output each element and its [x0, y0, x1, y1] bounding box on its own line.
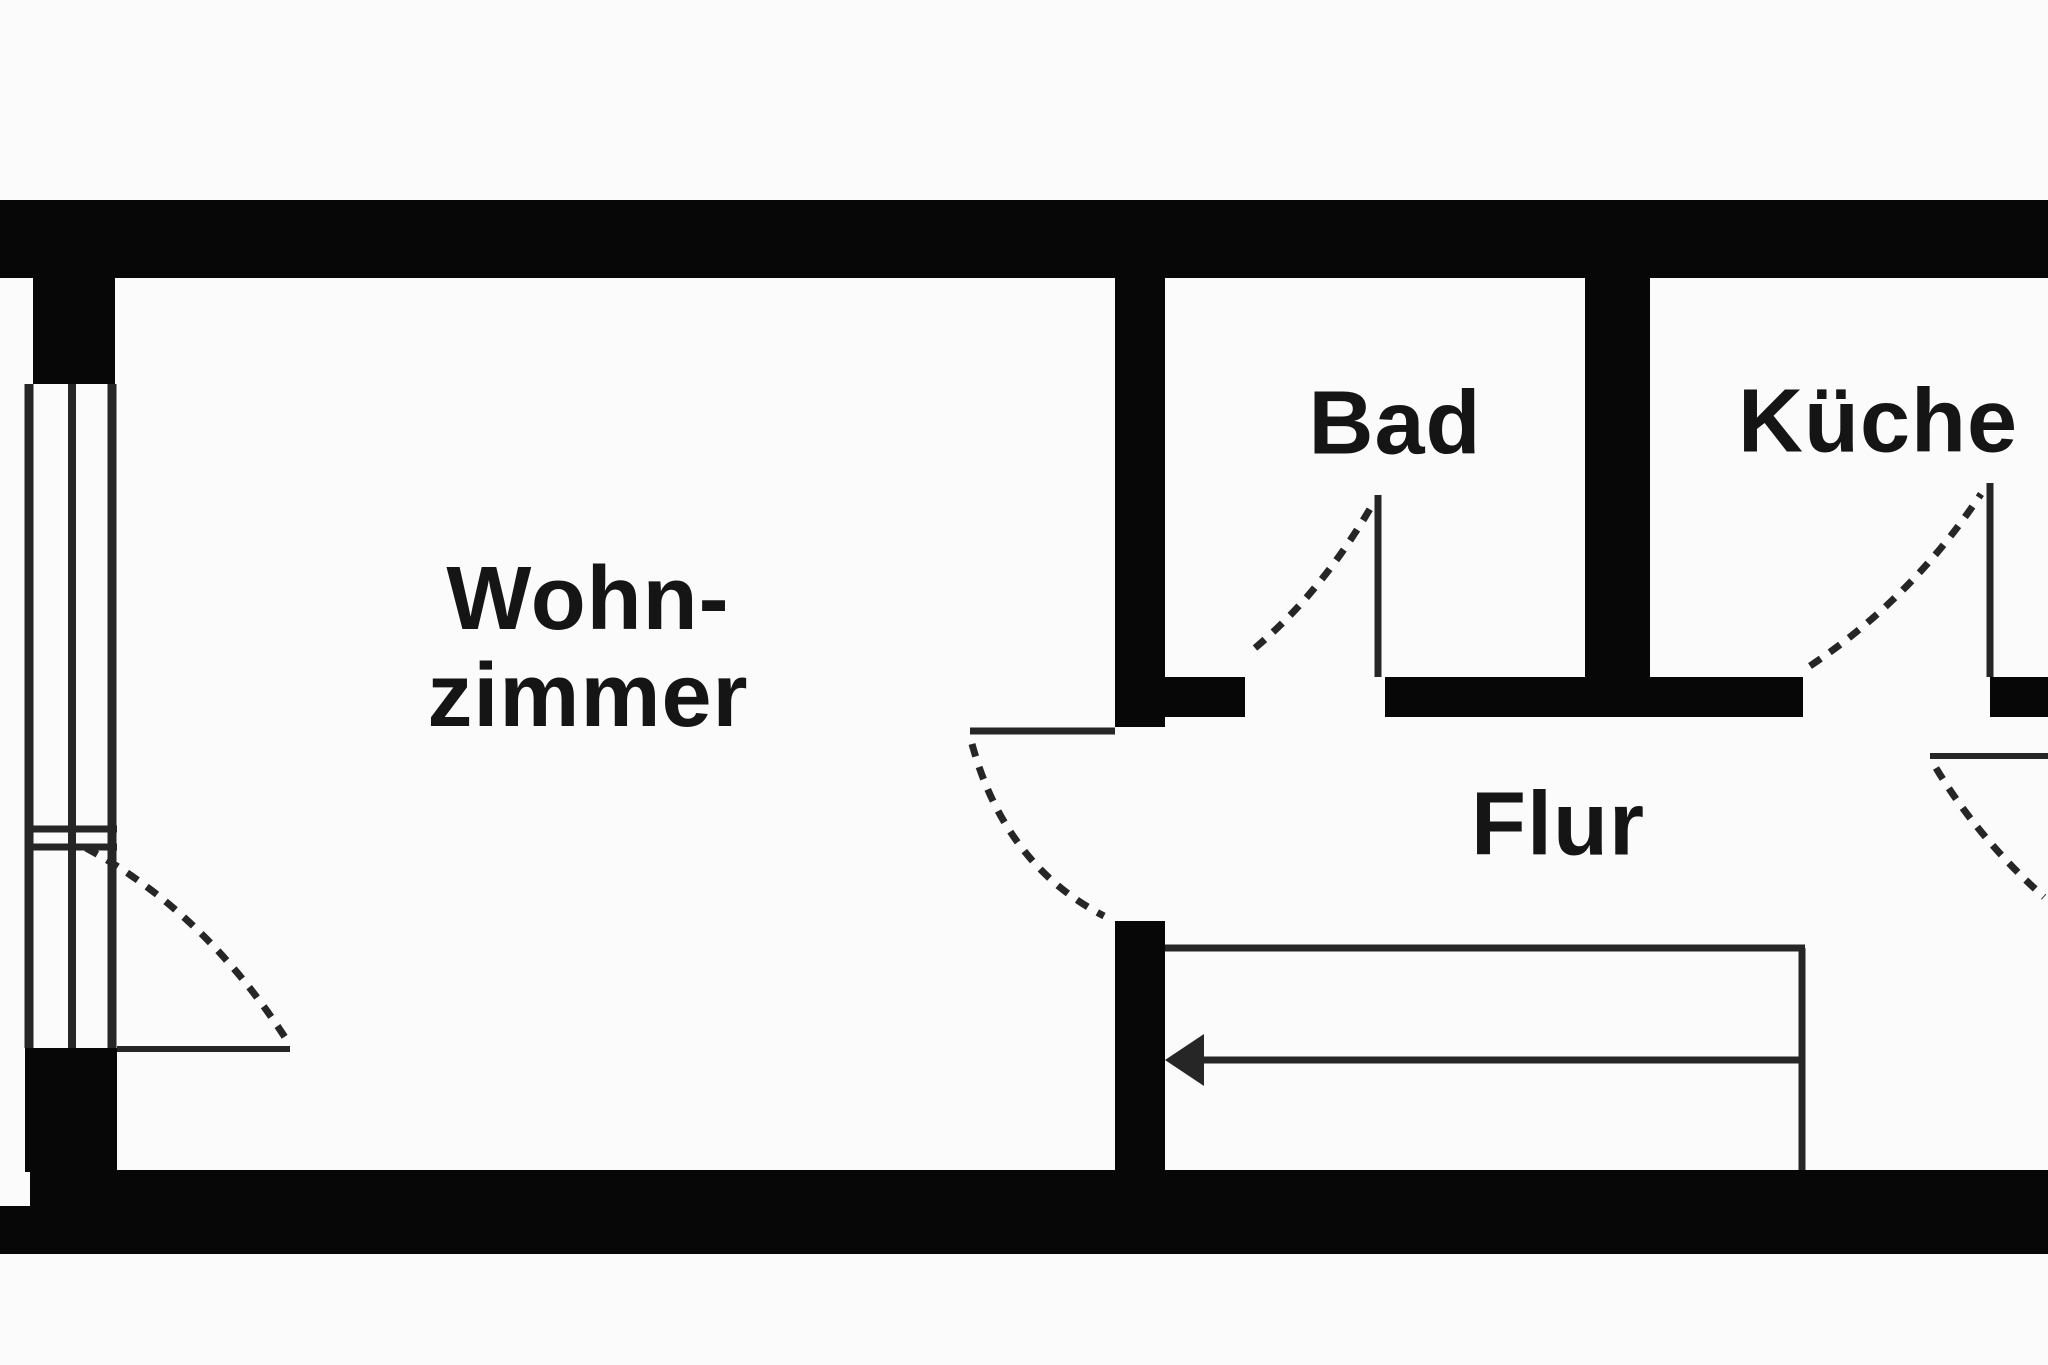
room-label-bad: Bad: [1308, 376, 1481, 473]
right-edge-door: [1930, 756, 2048, 897]
floor-plan: Wohn- zimmer Bad Küche Flur: [0, 0, 2048, 1365]
bad-door: [1255, 495, 1378, 677]
staircase: [1165, 948, 1805, 1170]
left-window: [25, 384, 117, 1048]
left-wall-bottom-pier: [25, 1048, 117, 1172]
top-wall: [0, 200, 2048, 278]
bad-kueche-divider-wall: [1585, 278, 1650, 678]
balcony-door: [86, 848, 290, 1049]
flur-wall-segment-left: [1165, 677, 1245, 717]
outer-walls: [0, 200, 2048, 1254]
room-label-flur: Flur: [1471, 777, 1645, 874]
room-label-wohnzimmer-line2: zimmer: [427, 648, 748, 745]
bottom-wall: [30, 1170, 2048, 1254]
left-wall-top-pier: [33, 278, 115, 384]
flur-wall-segment-middle: [1385, 677, 1803, 717]
stairs-direction-arrow-icon: [1165, 1034, 1204, 1086]
kueche-door: [1810, 483, 1990, 677]
flur-wall-segment-right: [1990, 677, 2048, 717]
wohnzimmer-divider-wall-lower: [1115, 921, 1165, 1171]
kueche-door-swing-arc: [1810, 494, 1981, 666]
floor-plan-drawing: [0, 0, 2048, 1365]
wohnzimmer-divider-wall-upper: [1115, 278, 1165, 727]
wohnzimmer-door-swing-arc: [972, 744, 1104, 916]
room-label-wohnzimmer-line1: Wohn-: [427, 551, 748, 648]
bottom-wall-left-step: [0, 1206, 34, 1254]
wohnzimmer-door: [970, 731, 1115, 916]
right-edge-door-swing-arc: [1936, 768, 2044, 897]
room-label-wohnzimmer: Wohn- zimmer: [427, 551, 748, 745]
bad-door-swing-arc: [1255, 502, 1374, 648]
room-label-kueche: Küche: [1738, 374, 2018, 471]
